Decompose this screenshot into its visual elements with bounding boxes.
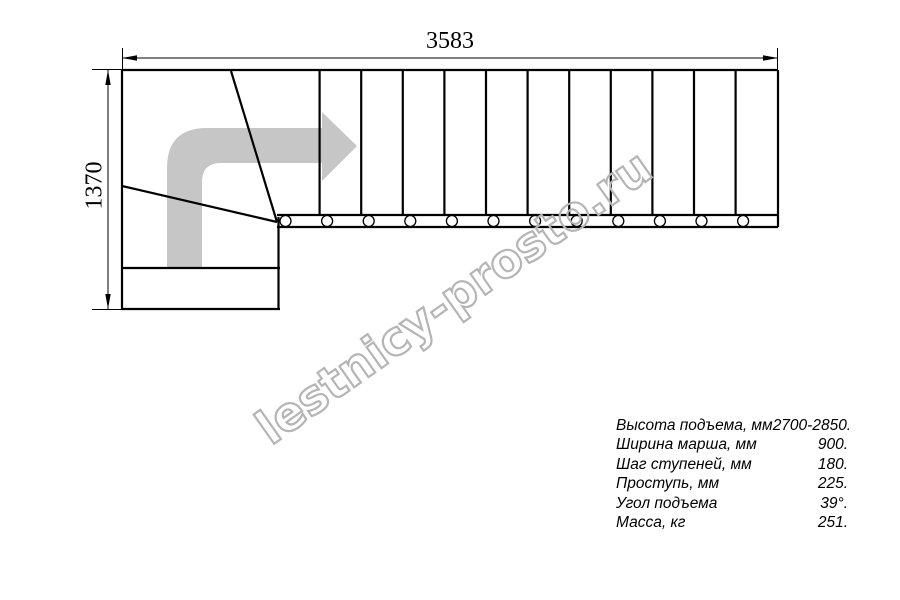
spec-value: 900. bbox=[818, 435, 848, 454]
spec-row-mass: Масса, кг 251. bbox=[616, 513, 848, 532]
spec-row-tread: Проступь, мм 225. bbox=[616, 474, 848, 493]
spec-value: 2700-2850. bbox=[773, 416, 851, 435]
spec-row-angle: Угол подъема 39°. bbox=[616, 494, 848, 513]
spec-label: Угол подъема bbox=[616, 494, 717, 513]
dim-arrow-left-icon bbox=[122, 55, 137, 60]
stair-drawing-canvas: lestnicy-prosto.ru 3583 1370 Высота подъ… bbox=[0, 0, 900, 600]
spec-label: Ширина марша, мм bbox=[616, 435, 757, 454]
spec-value: 39°. bbox=[820, 494, 848, 513]
spec-row-step-rise: Шаг ступеней, мм 180. bbox=[616, 455, 848, 474]
watermark-text: lestnicy-prosto.ru bbox=[246, 140, 662, 456]
height-dimension-label: 1370 bbox=[82, 136, 109, 236]
spec-value: 180. bbox=[818, 455, 848, 474]
width-dimension-label: 3583 bbox=[400, 28, 500, 55]
dim-arrow-right-icon bbox=[763, 55, 778, 60]
dim-arrow-up-icon bbox=[105, 70, 110, 85]
spec-label: Масса, кг bbox=[616, 513, 685, 532]
spec-label: Высота подъема, мм bbox=[616, 416, 773, 435]
dim-arrow-down-icon bbox=[105, 294, 110, 309]
spec-label: Проступь, мм bbox=[616, 474, 719, 493]
spec-value: 225. bbox=[818, 474, 848, 493]
spec-value: 251. bbox=[818, 513, 848, 532]
spec-label: Шаг ступеней, мм bbox=[616, 455, 752, 474]
spec-row-flight-width: Ширина марша, мм 900. bbox=[616, 435, 848, 454]
flight-tread-lines bbox=[320, 70, 736, 215]
walk-direction-arrow-icon bbox=[167, 112, 357, 268]
spec-row-height: Высота подъема, мм 2700-2850. bbox=[616, 416, 848, 435]
spec-table: Высота подъема, мм 2700-2850. Ширина мар… bbox=[616, 416, 848, 532]
